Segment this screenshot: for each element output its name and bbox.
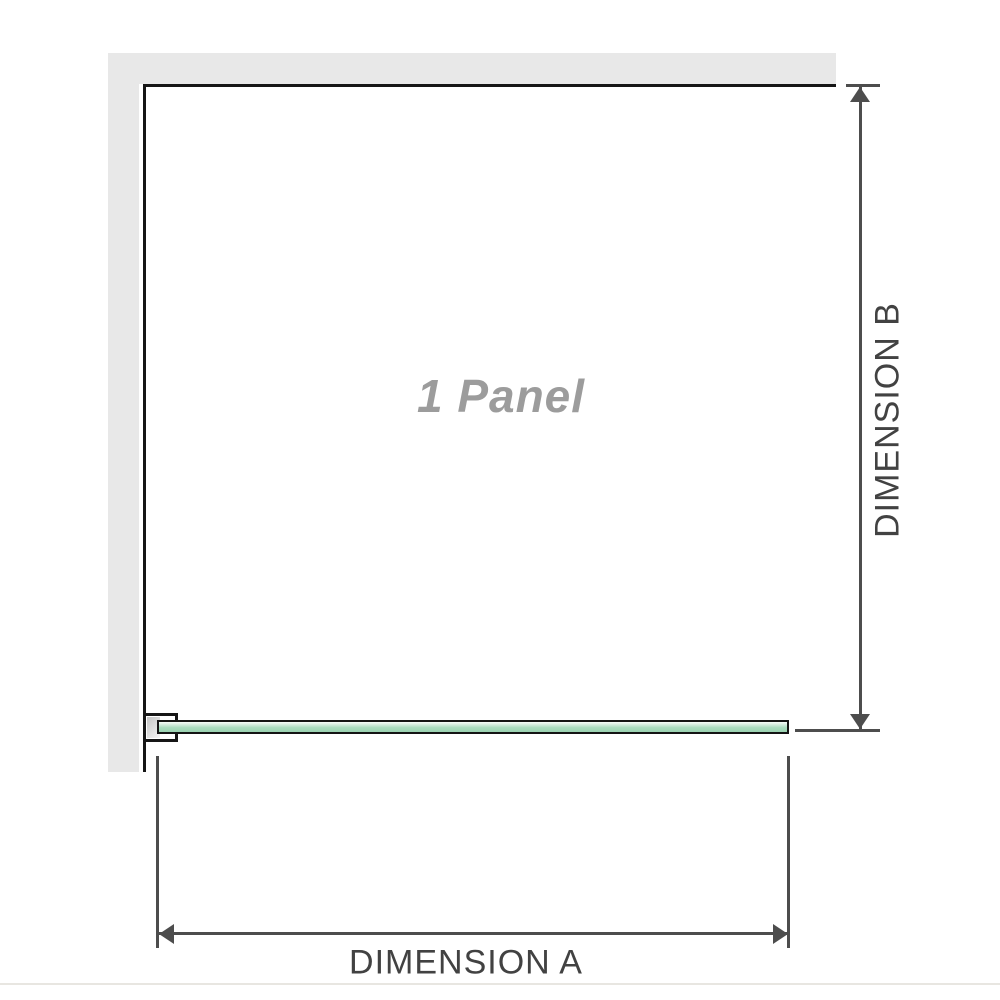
wall-inner-edge-top	[143, 84, 836, 87]
dimension-a-line	[159, 932, 788, 935]
dimension-a-extension-left	[156, 756, 159, 948]
panel-dimension-diagram: 1 Panel DIMENSION B DIMENSION A	[0, 0, 1000, 1000]
wall-left	[108, 53, 139, 772]
dimension-a-extension-right	[787, 756, 790, 948]
wall-top	[108, 53, 836, 84]
dimension-a-arrow-left-icon	[159, 924, 174, 944]
dimension-b-tick-bottom	[795, 729, 880, 732]
dimension-b-line	[859, 86, 862, 731]
panel-count-label: 1 Panel	[417, 369, 585, 423]
dimension-a-arrow-right-icon	[773, 924, 788, 944]
dimension-b-arrow-up-icon	[850, 87, 870, 102]
dimension-a-label: DIMENSION A	[349, 944, 583, 983]
bottom-divider	[0, 983, 1000, 985]
dimension-b-arrow-down-icon	[850, 714, 870, 729]
dimension-b-label: DIMENSION B	[869, 302, 908, 538]
glass-panel	[157, 720, 789, 734]
wall-inner-edge-left	[143, 84, 146, 772]
